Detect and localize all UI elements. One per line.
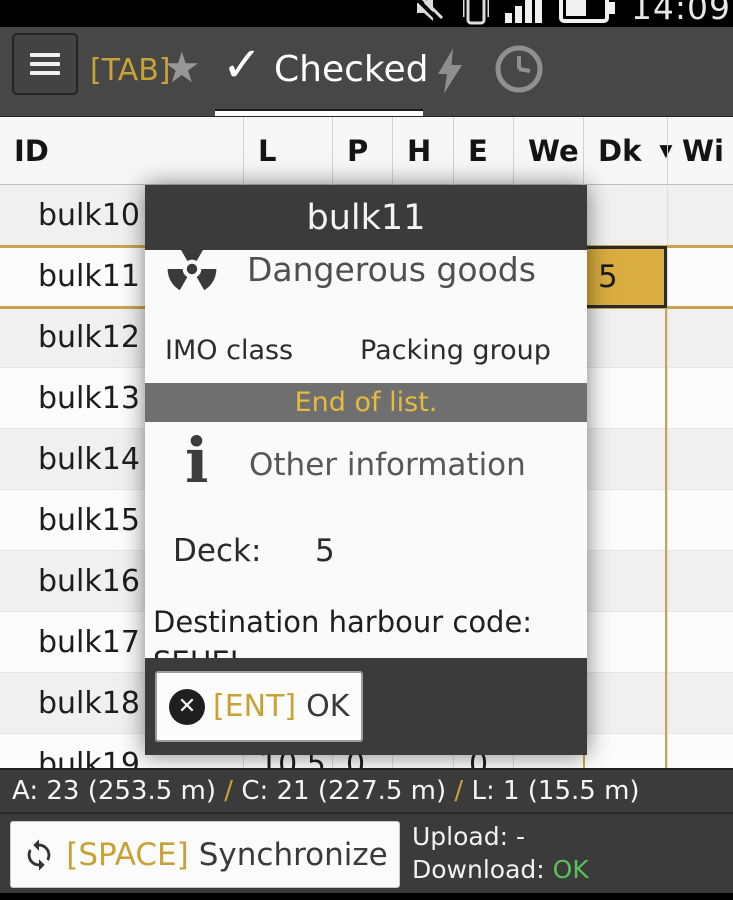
dialog-title: bulk11 [145,185,587,250]
sync-shortcut-label: [SPACE] [66,837,188,873]
totals-status-bar: A: 23 (253.5 m) / C: 21 (227.5 m) / L: 1… [0,768,733,812]
android-status-bar: 14:09 [0,0,733,27]
column-header-l[interactable]: L [243,117,332,185]
battery-icon [559,0,617,27]
packing-group-label: Packing group [360,335,551,366]
grid-line [667,185,668,768]
vibrate-icon [463,0,489,27]
signal-strength-icon [503,0,545,27]
clock-icon[interactable] [493,43,545,95]
bottom-edge [0,893,733,900]
upload-value: - [516,822,525,851]
end-of-list-banner: End of list. [145,383,587,422]
lightning-icon[interactable] [432,45,468,97]
total-c: C: 21 (227.5 m) [241,776,446,806]
info-icon: i [185,430,209,492]
tab-shortcut-label: [TAB] [90,53,171,88]
selected-cell-bulk11-dk[interactable]: 5 [583,246,667,308]
imo-class-label: IMO class [165,335,293,366]
cargo-detail-dialog: bulk11 Dangerous goods IMO class Packing… [145,185,587,755]
ok-button-label: OK [306,689,349,724]
table-header: ID L P H E We Dk▼ Wi [0,117,733,185]
radiation-icon [163,250,221,298]
status-time: 14:09 [631,0,731,27]
transfer-status: Upload: - Download: OK [412,820,589,886]
destination-harbour-label: Destination harbour code: [153,605,532,639]
column-header-we[interactable]: We [513,117,583,185]
tab-checked[interactable]: Checked [274,49,428,90]
ok-button[interactable]: ✕ [ENT] OK [155,671,363,742]
app-screen: 14:09 [TAB] ★ ✓ Checked ID L P H E We Dk… [0,0,733,900]
dangerous-goods-heading: Dangerous goods [247,250,536,289]
upload-status: Upload: - [412,820,589,853]
download-status: Download: OK [412,853,589,886]
total-a: A: 23 (253.5 m) [12,776,216,806]
hamburger-icon [30,48,60,80]
deck-label: Deck: [173,533,261,569]
column-header-wi[interactable]: Wi [667,117,733,185]
dangerous-goods-section: Dangerous goods [145,250,587,304]
column-header-id[interactable]: ID [0,117,243,185]
menu-button[interactable] [12,33,78,95]
synchronize-button[interactable]: [SPACE] Synchronize [10,821,400,888]
sync-icon [22,838,56,872]
star-icon[interactable]: ★ [163,43,201,92]
column-header-e[interactable]: E [453,117,513,185]
ok-shortcut-label: [ENT] [213,689,296,724]
download-value: OK [553,855,589,884]
deck-value: 5 [315,533,335,569]
sync-bar: [SPACE] Synchronize Upload: - Download: … [0,812,733,893]
check-icon: ✓ [222,37,262,93]
active-tab-indicator [215,109,423,116]
dialog-footer: ✕ [ENT] OK [145,658,587,755]
column-header-h[interactable]: H [392,117,453,185]
selected-column-right-border [665,246,667,768]
toolbar: [TAB] ★ ✓ Checked [0,27,733,117]
sync-button-label: Synchronize [199,837,388,873]
other-information-heading: Other information [249,447,526,483]
column-header-p[interactable]: P [332,117,392,185]
close-icon: ✕ [169,689,205,725]
total-l: L: 1 (15.5 m) [471,776,639,806]
volume-mute-icon [409,0,449,27]
column-header-dk[interactable]: Dk▼ [583,117,667,185]
